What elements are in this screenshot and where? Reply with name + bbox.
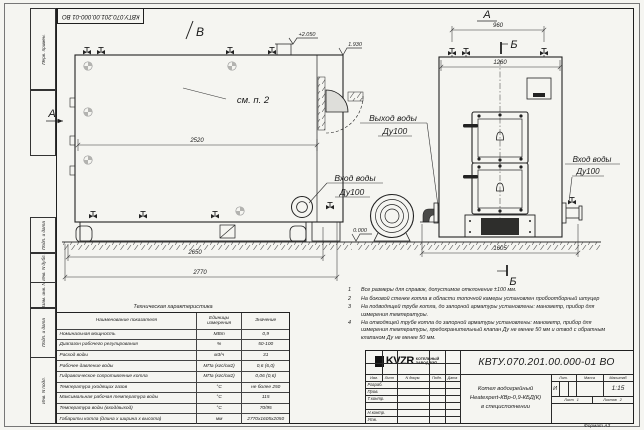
top-valve-icon (448, 48, 456, 55)
table-row: Температура уходящих газов°Сне более 250 (57, 382, 289, 393)
spec-unit: °С (196, 383, 242, 393)
col-list: Лист (382, 374, 397, 381)
spec-table-title: Техническая характеристика (56, 304, 290, 310)
boiler-front-view (371, 48, 583, 241)
col-podp: Подп. (429, 374, 445, 381)
spec-table: Наименование показателя Единицы измерени… (56, 312, 290, 424)
table-row: Номинальная мощностьМВт0,9 (57, 329, 289, 340)
drain-valve-icon (139, 211, 147, 218)
top-valve-icon (226, 47, 234, 54)
spec-unit: °С (196, 404, 242, 414)
spec-name: Расход воды (57, 351, 196, 361)
spec-unit: мм (196, 414, 242, 424)
dim-2770: 2770 (192, 270, 207, 276)
row-prov: Пров. (366, 388, 397, 395)
flue-damper (326, 90, 348, 112)
position-mark-icon (84, 156, 92, 164)
marker-a-left: А (47, 108, 55, 120)
format-label: Формат А3 (560, 424, 634, 429)
dim-1260: 1260 (493, 60, 507, 66)
position-mark-icon (84, 62, 92, 70)
drain-valve-icon (89, 211, 97, 218)
table-row: Диапазон рабочего регулирования%50-100 (57, 339, 289, 350)
notes-list: 1Все размеры для справок, допустимое отк… (348, 287, 614, 343)
spec-value: 0,06 (0,6) (241, 372, 289, 382)
spec-unit: МПа (кгс/см2) (196, 372, 242, 382)
note-number: 1 (348, 287, 361, 294)
doc-number: КВТУ.070.201.00.000-01 ВО (460, 351, 633, 374)
inlet-right-label-line1: Вход воды (573, 155, 612, 164)
row-nkontr: Н.контр. (366, 409, 397, 416)
top-valve-icon (268, 47, 276, 54)
scale-header: Масштаб (603, 374, 633, 381)
outlet-label-line2: Ду100 (382, 126, 408, 136)
inlet-valve-icon (326, 202, 334, 209)
elevation-top-value: +2.050 (299, 32, 317, 38)
list-item: 3На подводящей трубе котла, до запорной … (348, 304, 614, 318)
col-data: Дата (445, 374, 460, 381)
note-number: 2 (348, 296, 361, 303)
position-mark-icon (228, 62, 236, 70)
note-number: 3 (348, 304, 361, 318)
top-valve-icon (83, 47, 91, 54)
marker-a-top: А (482, 9, 490, 21)
spec-value: 2770х1605х2050 (241, 414, 289, 424)
ash-opening (481, 218, 519, 235)
table-row: Гидравлическое сопротивление котлаМПа (к… (57, 371, 289, 382)
spec-unit: МВт (196, 330, 242, 340)
sheet-label: Лист (564, 398, 574, 402)
row-tkontr: Т.контр. (366, 395, 397, 402)
table-row: Габариты котла (длина х ширина х высота)… (57, 413, 289, 424)
kvzr-logo-text: KVZR (386, 355, 414, 367)
sheet-cell: Лист 1 (551, 396, 592, 403)
mass-header: Масса (576, 374, 603, 381)
product-name-line1: Котел водогрейный (478, 385, 533, 394)
spec-unit: м3/ч (196, 351, 242, 361)
boiler-base (80, 222, 306, 241)
water-inlet-flange (292, 197, 313, 218)
drain-valve-icon (211, 211, 219, 218)
spec-name: Номинальная мощность (57, 330, 196, 340)
spec-value: не более 250 (241, 383, 289, 393)
sheets-label: Листов (603, 398, 616, 402)
upper-door (463, 112, 528, 163)
company-logo: KVZR КОТЕЛЬНЫЙ ЗАВОД РЭП (366, 351, 448, 371)
ground-line (62, 242, 601, 250)
row-utv: Утв. (366, 416, 397, 423)
inlet-pipe (562, 197, 582, 223)
spec-value: 70/95 (241, 404, 289, 414)
door-handle (463, 124, 478, 128)
spec-name: Рабочее давление воды (57, 361, 196, 371)
drawing-sheet: Перв. примен. Подп. и дата Инв. N дубл. … (0, 0, 644, 430)
row-razrab: Разраб. (366, 381, 397, 388)
spec-value: 31 (241, 351, 289, 361)
product-name-line2: Heatexpert-КВр-0,9-КБД(К) (470, 394, 541, 403)
list-item: 2На боковой стенке котла в области топоч… (348, 296, 614, 303)
dim-2650: 2650 (187, 250, 202, 256)
inlet-left-label-line1: Вход воды (334, 173, 376, 183)
note-number: 4 (348, 320, 361, 342)
spec-value: 50-100 (241, 340, 289, 350)
spec-unit: МПа (кгс/см2) (196, 361, 242, 371)
note-text: На отводящей трубе котла до запорной арм… (361, 320, 614, 342)
spec-value: 0,6 (6,0) (241, 361, 289, 371)
note-text: Все размеры для справок, допустимое откл… (361, 287, 614, 294)
marker-v: В (196, 25, 204, 39)
lower-door (463, 163, 528, 214)
top-valve-icon (97, 47, 105, 54)
position-mark-icon (236, 207, 244, 215)
elevation-marks (289, 38, 372, 241)
door-handle (463, 175, 478, 179)
title-block: КВТУ.070.201.00.000-01 ВО Изм. Лист N до… (365, 350, 634, 424)
table-row: Расход водым3/ч31 (57, 350, 289, 361)
spec-name: Температура воды (вход/выход) (57, 404, 196, 414)
dim-2520: 2520 (189, 138, 204, 144)
elevation-zero-value: 0.000 (353, 228, 368, 234)
dim-960: 960 (493, 23, 504, 29)
col-doc: N докум. (397, 374, 429, 381)
elevation-duct-value: 1.930 (348, 42, 363, 48)
spec-unit: % (196, 340, 242, 350)
note-text: На подводящей трубе котла, до запорной а… (361, 304, 614, 318)
marker-b-top: Б (510, 39, 517, 51)
product-name-line3: в специсполнении (481, 403, 530, 412)
outlet-pipe (420, 203, 439, 223)
spec-header-unit: Единицы измерения (196, 313, 242, 329)
top-valve-icon (462, 48, 470, 55)
product-name: Котел водогрейный Heatexpert-КВр-0,9-КБД… (460, 374, 551, 423)
lit-header: Лит. (551, 374, 576, 381)
blower-fan (371, 195, 414, 242)
spec-header-row: Наименование показателя Единицы измерени… (57, 313, 289, 329)
table-row: Температура воды (вход/выход)°С70/95 (57, 403, 289, 414)
spec-name: Максимальная рабочая температура воды (57, 393, 196, 403)
spec-unit: °С (196, 393, 242, 403)
sheets-value: 2 (620, 398, 622, 402)
table-row: Рабочее давление водыМПа (кгс/см2)0,6 (6… (57, 360, 289, 371)
spec-header-name: Наименование показателя (57, 313, 196, 329)
spec-header-value: Значение (241, 313, 289, 329)
see-note-leader (183, 88, 226, 99)
sheet-value: 1 (577, 398, 579, 402)
position-mark-icon (84, 108, 92, 116)
inlet-left-label-line2: Ду100 (339, 187, 365, 197)
spec-name: Диапазон рабочего регулирования (57, 340, 196, 350)
spec-name: Гидравлическое сопротивление котла (57, 372, 196, 382)
top-valve-icon (540, 48, 548, 55)
inlet-right-label-line2: Ду100 (575, 167, 600, 176)
spec-name: Габариты котла (длина х ширина х высота) (57, 414, 196, 424)
spec-name: Температура уходящих газов (57, 383, 196, 393)
note-text: На боковой стенке котла в области топочн… (361, 296, 614, 303)
list-item: 1Все размеры для справок, допустимое отк… (348, 287, 614, 294)
lit-value: И (551, 381, 559, 396)
table-row: Максимальная рабочая температура воды°С1… (57, 392, 289, 403)
see-note-label: см. п. 2 (237, 95, 270, 106)
spec-value: 0,9 (241, 330, 289, 340)
scale-value: 1:15 (603, 381, 633, 396)
outlet-label-line1: Выход воды (369, 113, 418, 123)
list-item: 4На отводящей трубе котла до запорной ар… (348, 320, 614, 342)
spec-value: 115 (241, 393, 289, 403)
dim-1605: 1605 (493, 246, 507, 252)
col-izm: Изм. (366, 374, 382, 381)
sheets-cell: Листов 2 (592, 396, 633, 403)
